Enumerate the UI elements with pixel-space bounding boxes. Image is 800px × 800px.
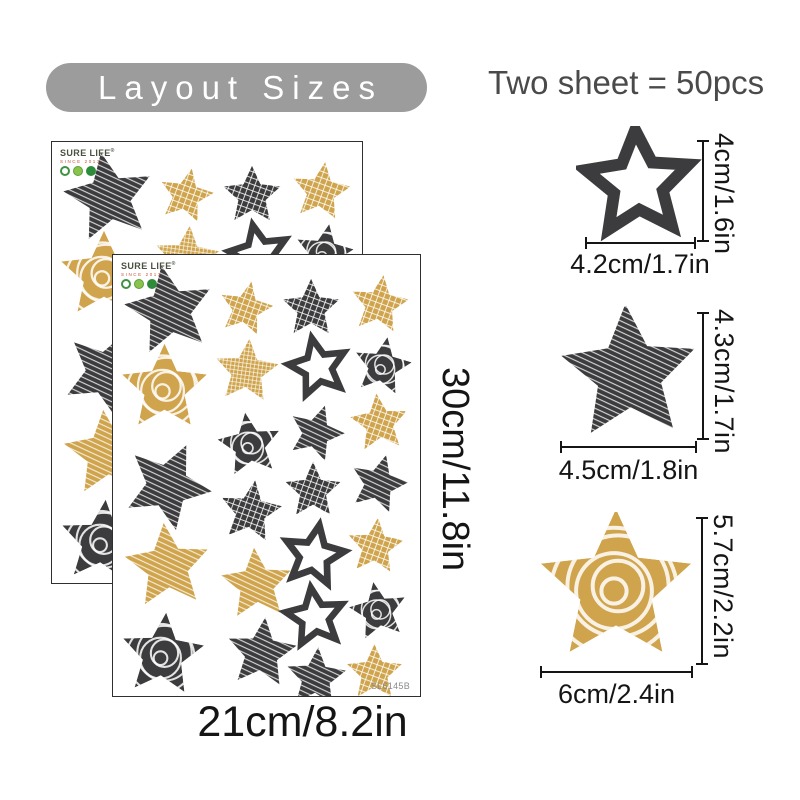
sample-medium-height-label: 4.3cm/1.7in [708, 309, 739, 454]
sheet-width-label: 21cm/8.2in [145, 698, 460, 747]
sample-small-width-label: 4.2cm/1.7in [560, 249, 720, 280]
brand-badges [121, 279, 176, 289]
badge-icon [121, 279, 131, 289]
brand-badges [60, 166, 115, 176]
height-dimension-line [702, 140, 704, 242]
sticker-sheet-front: SURE LIFE® SINCE 2013 SL6145B [112, 254, 421, 697]
banner-label: Layout Sizes [90, 69, 383, 107]
registered-mark: ® [172, 261, 176, 267]
sample-star-medium [556, 306, 702, 446]
sheet-count-note: Two sheet = 50pcs [488, 64, 778, 102]
brand-logo: SURE LIFE® SINCE 2013 [60, 149, 115, 176]
sample-large-width-label: 6cm/2.4in [532, 679, 701, 710]
brand-logo: SURE LIFE® SINCE 2013 [121, 262, 176, 289]
sample-star-large [534, 512, 698, 668]
sticker-sheet-front-stars [113, 255, 420, 696]
width-dimension-line [540, 671, 693, 673]
sample-star-small [576, 126, 702, 248]
brand-name: SURE LIFE® [60, 149, 115, 158]
product-size-infographic: Layout Sizes Two sheet = 50pcs SURE LIFE… [0, 0, 800, 800]
badge-icon [60, 166, 70, 176]
height-dimension-line [701, 517, 703, 665]
width-dimension-line [585, 242, 696, 244]
height-dimension-line [702, 312, 704, 440]
registered-mark: ® [111, 148, 115, 154]
brand-since: SINCE 2013 [121, 273, 176, 278]
badge-icon [134, 279, 144, 289]
width-dimension-line [560, 446, 697, 448]
badge-icon [86, 166, 96, 176]
brand-name: SURE LIFE® [121, 262, 176, 271]
badge-icon [147, 279, 157, 289]
sample-large-height-label: 5.7cm/2.2in [707, 514, 738, 659]
sheet-height-label: 30cm/11.8in [433, 367, 476, 571]
sample-medium-width-label: 4.5cm/1.8in [552, 455, 705, 486]
badge-icon [73, 166, 83, 176]
sample-small-height-label: 4cm/1.6in [708, 133, 739, 255]
sheet-sku: SL6145B [371, 681, 410, 691]
brand-since: SINCE 2013 [60, 160, 115, 165]
layout-sizes-banner: Layout Sizes [46, 63, 427, 112]
